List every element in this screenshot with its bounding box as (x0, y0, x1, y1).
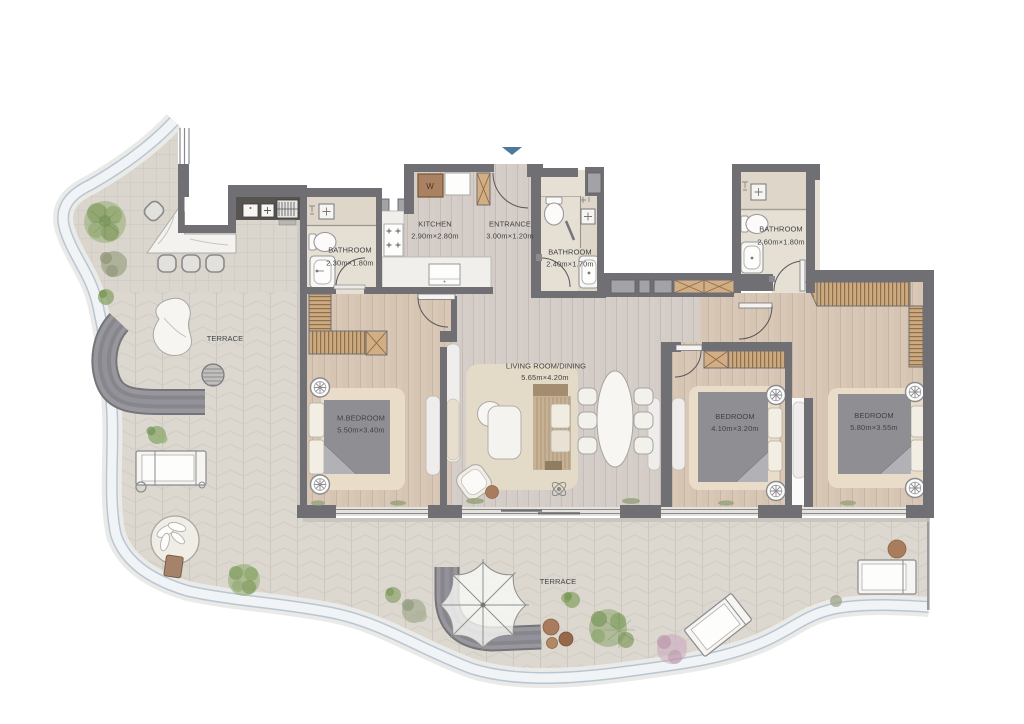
svg-text:4.10m×3.20m: 4.10m×3.20m (711, 424, 759, 433)
svg-text:LIVING ROOM/DINING: LIVING ROOM/DINING (506, 362, 586, 371)
svg-text:5.65m×4.20m: 5.65m×4.20m (521, 373, 569, 382)
svg-text:2.40m×1.70m: 2.40m×1.70m (546, 260, 594, 269)
svg-text:2.60m×1.80m: 2.60m×1.80m (757, 238, 805, 247)
svg-text:ENTRANCE: ENTRANCE (489, 220, 531, 229)
svg-text:W: W (426, 182, 434, 191)
svg-text:BATHROOM: BATHROOM (548, 248, 592, 257)
svg-text:TERRACE: TERRACE (540, 577, 577, 586)
svg-text:TERRACE: TERRACE (207, 334, 244, 343)
svg-text:3.00m×1.20m: 3.00m×1.20m (486, 232, 534, 241)
svg-text:2.30m×1.80m: 2.30m×1.80m (326, 259, 374, 268)
svg-text:KITCHEN: KITCHEN (418, 220, 452, 229)
svg-text:BATHROOM: BATHROOM (328, 246, 372, 255)
svg-text:BEDROOM: BEDROOM (715, 412, 754, 421)
svg-text:2.90m×2.80m: 2.90m×2.80m (411, 232, 459, 241)
svg-text:M.BEDROOM: M.BEDROOM (337, 414, 385, 423)
svg-text:5.80m×3.55m: 5.80m×3.55m (850, 423, 898, 432)
svg-text:BEDROOM: BEDROOM (854, 411, 893, 420)
svg-text:5.50m×3.40m: 5.50m×3.40m (337, 426, 385, 435)
svg-text:BATHROOM: BATHROOM (759, 225, 803, 234)
